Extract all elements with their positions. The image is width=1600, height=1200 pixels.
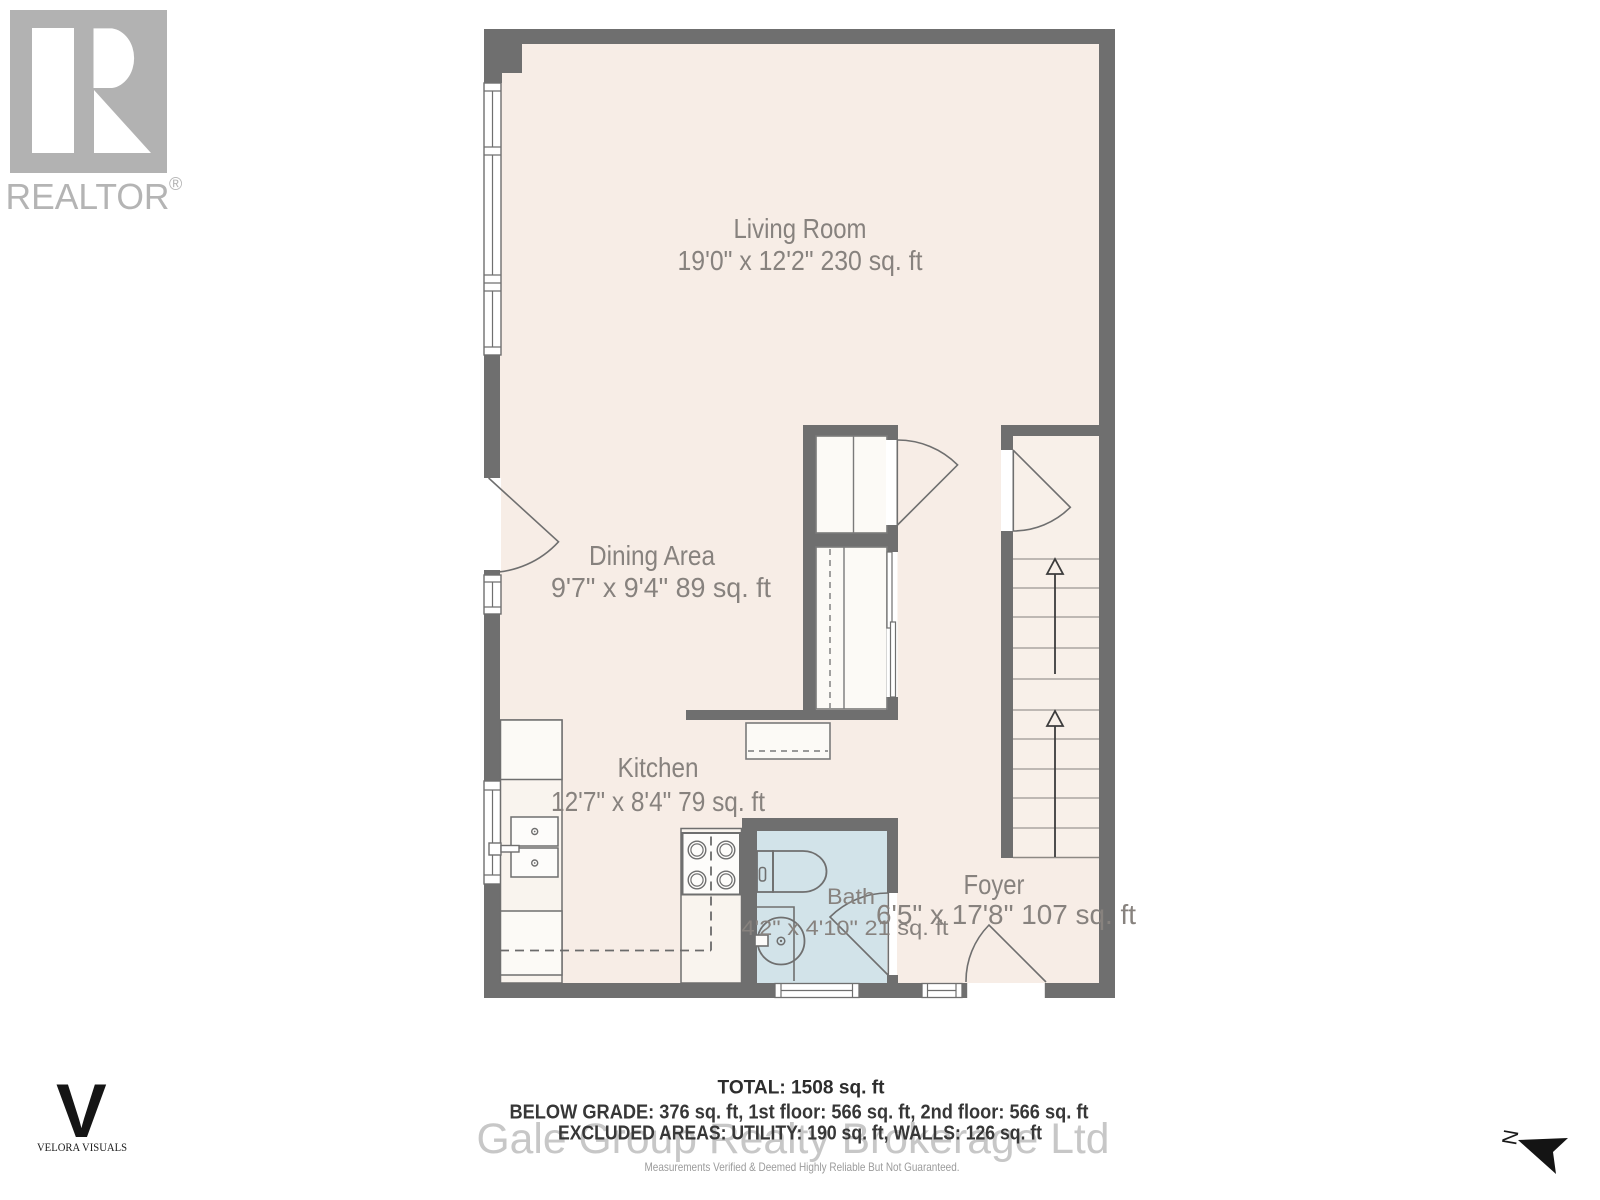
svg-text:EXCLUDED AREAS: UTILITY: 190 s: EXCLUDED AREAS: UTILITY: 190 sq. ft, WAL…: [558, 1122, 1042, 1145]
svg-text:VELORA VISUALS: VELORA VISUALS: [37, 1142, 127, 1154]
svg-text:®: ®: [169, 174, 182, 194]
svg-text:19'0" x 12'2" 230 sq. ft: 19'0" x 12'2" 230 sq. ft: [678, 245, 923, 276]
svg-text:TOTAL: 1508 sq. ft: TOTAL: 1508 sq. ft: [718, 1077, 885, 1099]
svg-text:9'7" x 9'4" 89 sq. ft: 9'7" x 9'4" 89 sq. ft: [551, 572, 771, 603]
svg-text:12'7" x 8'4" 79 sq. ft: 12'7" x 8'4" 79 sq. ft: [551, 786, 765, 817]
svg-text:REALTOR: REALTOR: [6, 176, 170, 217]
svg-text:Foyer: Foyer: [964, 869, 1025, 900]
svg-text:Living Room: Living Room: [734, 213, 867, 244]
svg-text:Measurements Verified & Deemed: Measurements Verified & Deemed Highly Re…: [645, 1160, 960, 1174]
svg-text:Bath: Bath: [827, 884, 875, 909]
svg-text:BELOW GRADE: 376 sq. ft, 1st f: BELOW GRADE: 376 sq. ft, 1st floor: 566 …: [510, 1101, 1089, 1124]
svg-text:Dining Area: Dining Area: [589, 540, 715, 571]
svg-text:Kitchen: Kitchen: [618, 752, 699, 783]
svg-text:6'5" x 17'8" 107 sq. ft: 6'5" x 17'8" 107 sq. ft: [876, 899, 1136, 930]
